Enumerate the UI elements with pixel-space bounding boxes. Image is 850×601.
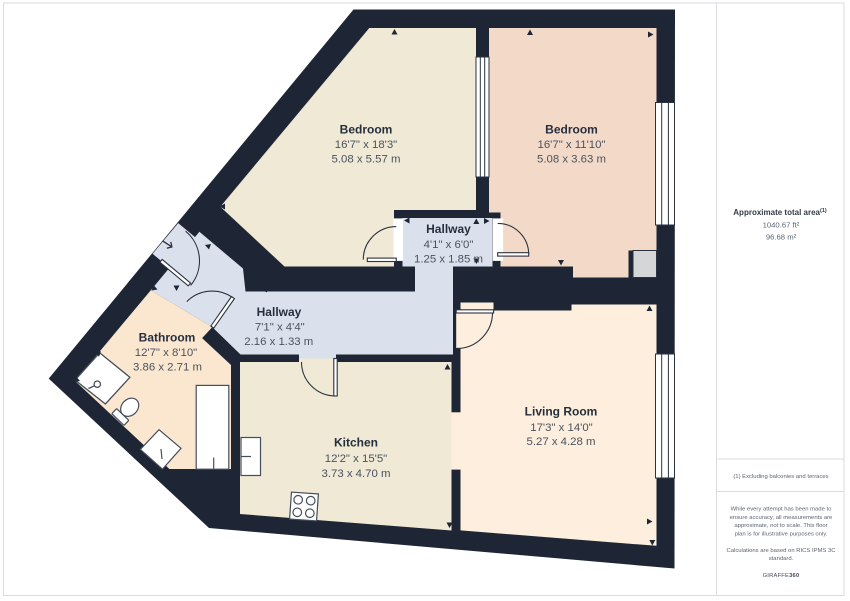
svg-text:standard.: standard.: [769, 556, 794, 562]
svg-text:GIRAFFE360: GIRAFFE360: [763, 573, 800, 579]
svg-text:(1) Excluding balconies and te: (1) Excluding balconies and terraces: [733, 474, 828, 480]
svg-text:16'7" x 11'10": 16'7" x 11'10": [538, 139, 606, 151]
svg-text:5.08 x 3.63 m: 5.08 x 3.63 m: [537, 154, 606, 166]
svg-text:3.73 x 4.70 m: 3.73 x 4.70 m: [321, 468, 390, 480]
svg-text:Bedroom: Bedroom: [545, 122, 598, 136]
svg-text:While every attempt has been m: While every attempt has been made to: [731, 507, 833, 513]
svg-text:1.25 x 1.85 m: 1.25 x 1.85 m: [414, 254, 483, 266]
svg-text:ensure accuracy, all measureme: ensure accuracy, all measurements are: [730, 515, 833, 521]
svg-text:5.27 x 4.28 m: 5.27 x 4.28 m: [526, 436, 595, 448]
svg-text:approximate, not to scale. Thi: approximate, not to scale. This floor: [734, 523, 827, 529]
svg-text:Living Room: Living Room: [525, 404, 598, 418]
svg-text:Hallway: Hallway: [257, 305, 302, 319]
svg-text:4'1" x 6'0": 4'1" x 6'0": [424, 239, 474, 251]
svg-text:3.86 x 2.71 m: 3.86 x 2.71 m: [133, 361, 202, 373]
svg-text:Calculations are based on RICS: Calculations are based on RICS IPMS 3C: [726, 548, 836, 554]
svg-text:5.08 x 5.57 m: 5.08 x 5.57 m: [331, 154, 400, 166]
svg-text:96.68 m²: 96.68 m²: [766, 233, 797, 242]
svg-text:16'7" x 18'3": 16'7" x 18'3": [335, 139, 397, 151]
svg-text:Bedroom: Bedroom: [340, 122, 393, 136]
svg-text:2.16 x 1.33 m: 2.16 x 1.33 m: [244, 336, 313, 348]
svg-text:Bathroom: Bathroom: [139, 330, 196, 344]
svg-text:Approximate total area(1): Approximate total area(1): [733, 208, 827, 217]
svg-text:12'7" x 8'10": 12'7" x 8'10": [135, 347, 197, 359]
svg-text:12'2" x 15'5": 12'2" x 15'5": [325, 453, 387, 465]
svg-text:7'1" x 4'4": 7'1" x 4'4": [255, 322, 305, 334]
svg-text:plan is for illustrative purpo: plan is for illustrative purposes only.: [735, 531, 828, 537]
svg-text:1040.67 ft²: 1040.67 ft²: [763, 221, 800, 230]
svg-text:Hallway: Hallway: [426, 222, 471, 236]
svg-text:Kitchen: Kitchen: [334, 435, 378, 449]
svg-text:17'3" x 14'0": 17'3" x 14'0": [530, 422, 592, 434]
